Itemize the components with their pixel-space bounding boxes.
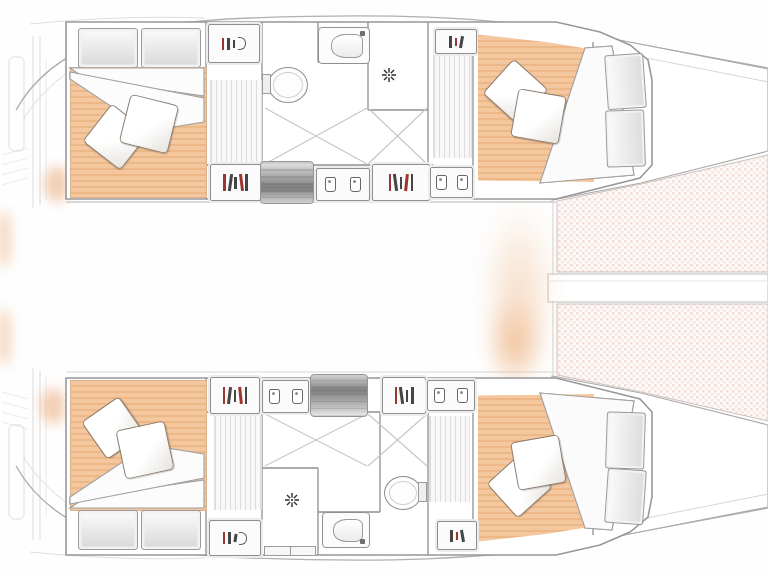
- hanging-clothes-icon: [411, 387, 414, 404]
- pillow: [510, 434, 567, 491]
- hanging-clothes-icon: [233, 534, 237, 542]
- hanging-clothes-icon: [234, 390, 237, 402]
- starboard-hull: [0, 0, 768, 576]
- corridor-floorboards: [214, 416, 262, 510]
- companionway-stairs: [310, 374, 368, 417]
- wardrobe-unit: [382, 377, 426, 414]
- sink-basin: [333, 519, 363, 542]
- shelf-icon: [292, 389, 303, 404]
- headboard-cushion: [141, 510, 201, 550]
- hanging-clothes-icon: [245, 387, 248, 404]
- hanging-clothes-icon: [223, 387, 226, 404]
- corridor-floorboards: [429, 416, 470, 502]
- hanging-clothes-icon: [450, 530, 453, 542]
- toilet-cistern: [418, 482, 427, 502]
- hanging-clothes-icon: [399, 387, 404, 404]
- pillow: [115, 420, 174, 479]
- hanging-clothes-icon: [395, 387, 398, 404]
- shower-head-icon: [285, 493, 299, 507]
- bow-berth-cushion: [605, 411, 646, 469]
- shelf-icon: [269, 389, 280, 404]
- sink: [322, 512, 370, 548]
- hanging-clothes-icon: [228, 532, 231, 544]
- toilet: [384, 476, 422, 510]
- shelf-icon: [457, 388, 468, 403]
- catamaran-floorplan-canvas: [0, 0, 768, 576]
- hanging-clothes-icon: [238, 387, 242, 404]
- shelf-unit: [262, 380, 309, 413]
- wardrobe-unit: [210, 377, 260, 414]
- faucet-icon: [360, 539, 365, 544]
- locker-outboard-aft: [209, 520, 261, 556]
- hanging-clothes-icon: [460, 529, 465, 541]
- hanging-clothes-icon: [223, 532, 226, 544]
- hanging-clothes-icon: [406, 390, 409, 402]
- shower-drawer: [264, 546, 316, 556]
- locker-fwd-outboard: [437, 521, 477, 550]
- bow-berth-cushion: [604, 468, 647, 526]
- shelf-unit: [427, 380, 475, 411]
- hanging-clothes-icon: [227, 387, 232, 404]
- hanger-hook-icon: [239, 532, 247, 545]
- hanging-clothes-icon: [456, 532, 459, 540]
- shelf-icon: [434, 388, 445, 403]
- headboard-cushion: [78, 510, 138, 550]
